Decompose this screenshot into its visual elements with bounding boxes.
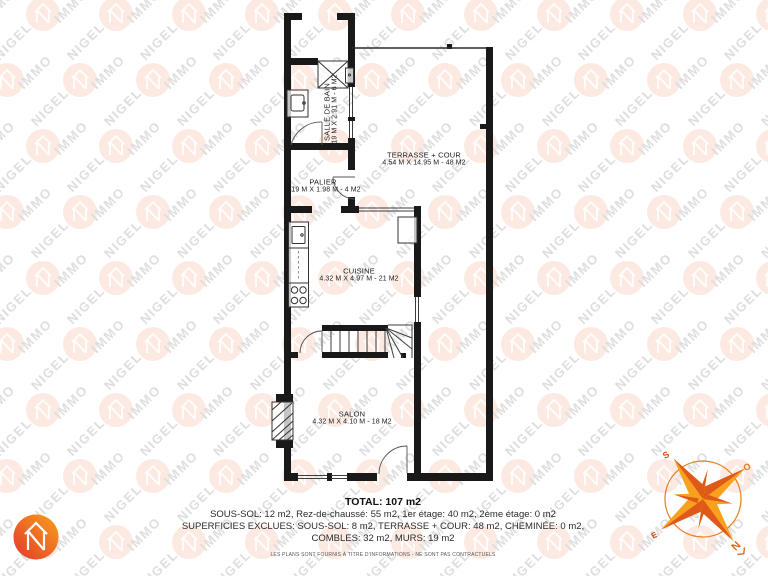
bathroom-sink (287, 90, 308, 117)
chimney (272, 402, 293, 440)
excluded-areas-2: COMBLES: 32 m2, MURS: 19 m2 (311, 533, 454, 544)
nigel-immo-logo (14, 515, 59, 560)
areas-by-floor: SOUS-SOL: 12 m2, Rez-de-chaussé: 55 m2, … (210, 509, 556, 520)
room-label-terrasse: TERRASSE + COUR 4.54 M X 14.95 M - 48 M2 (382, 150, 465, 168)
compass-north: N (728, 538, 748, 558)
disclaimer: LES PLANS SONT FOURNIS À TITRE D’INFORMA… (270, 552, 495, 558)
compass-west: O (742, 461, 752, 473)
room-label-palier: PALIER 2.19 M X 1.98 M - 4 M2 (285, 177, 360, 195)
kitchen-counter (289, 222, 309, 307)
compass-rose: S O E N (632, 428, 768, 572)
svg-text:N: N (728, 538, 742, 552)
compass-east: E (650, 530, 660, 541)
kitchen-cupboard (398, 217, 417, 243)
floorplan-drawing: S O E N (0, 0, 768, 576)
excluded-areas: SUPERFICIES EXCLUES: SOUS-SOL: 8 m2, TER… (182, 521, 584, 532)
compass-south: S (661, 449, 671, 461)
floorplan-page: NIGELIMMONIGELIMMONIGELIMMONIGELIMMONIGE… (0, 0, 768, 576)
total-area: TOTAL: 107 m2 (345, 496, 421, 508)
room-label-salle-de-bain: SALLE DE BAIN 2.19 M X 2.91 M - 6 M2 (322, 74, 340, 149)
room-label-salon: SALON 4.32 M X 4.10 M - 18 M2 (312, 409, 391, 427)
room-label-cuisine: CUISINE 4.32 M X 4.97 M - 21 M2 (319, 266, 398, 284)
